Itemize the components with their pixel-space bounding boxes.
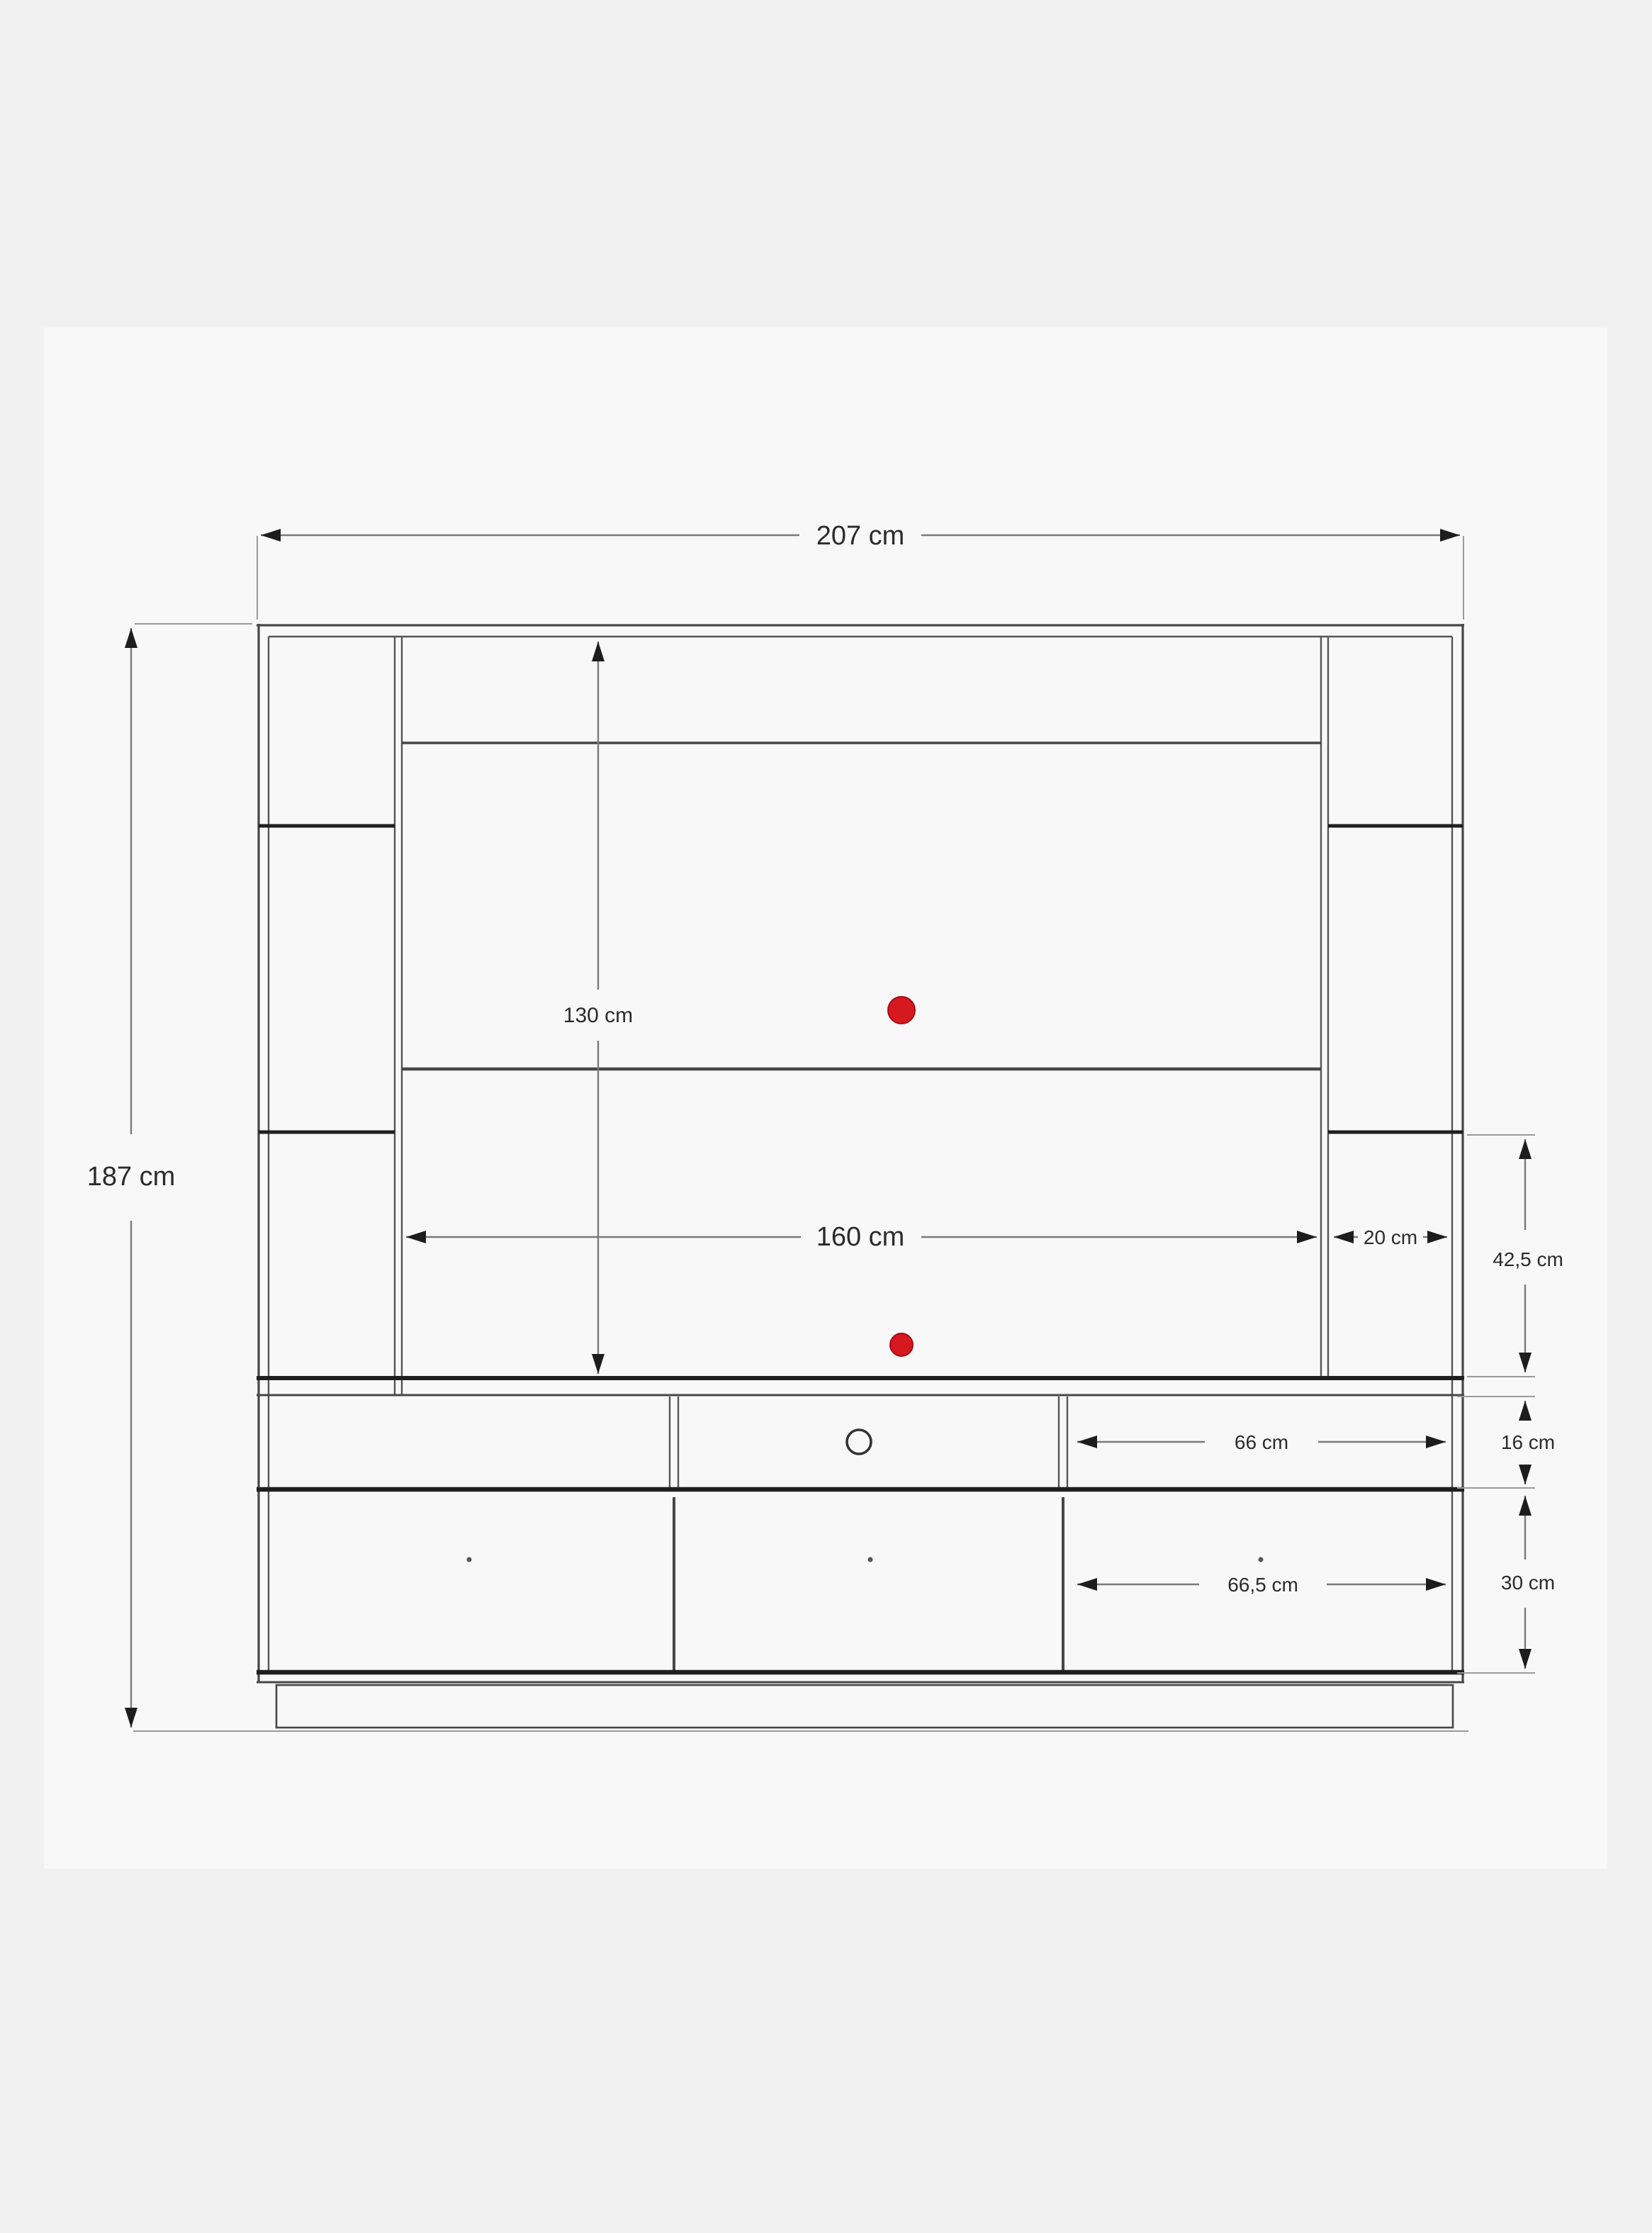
- right-side-column: [1321, 637, 1463, 1378]
- drawer-knob-right: [1259, 1557, 1264, 1562]
- dim-side-column-width-label: 20 cm: [1364, 1226, 1417, 1248]
- dim-shelf-opening-width-label: 66 cm: [1235, 1431, 1288, 1453]
- dimension-total-height: 187 cm: [87, 624, 1468, 1731]
- dimension-shelf-row-height: 16 cm: [1457, 1397, 1555, 1488]
- drawer-knob-left: [467, 1557, 472, 1562]
- dim-shelf-row-height-label: 16 cm: [1501, 1431, 1555, 1453]
- dimension-shelf-opening-width: 66 cm: [1077, 1431, 1446, 1453]
- drawer-row: [257, 1497, 1464, 1728]
- dimension-side-column-width: 20 cm: [1334, 1226, 1447, 1248]
- dim-drawer-width-label: 66,5 cm: [1227, 1574, 1298, 1596]
- dim-tv-opening-width-label: 160 cm: [816, 1222, 905, 1252]
- dimension-side-niche-height: 42,5 cm: [1467, 1135, 1563, 1377]
- plinth: [276, 1685, 1453, 1728]
- carcass-bottom: [257, 1378, 1464, 1395]
- dimension-back-panel-height: 130 cm: [563, 642, 633, 1374]
- back-panel: [402, 743, 1321, 1356]
- dim-back-panel-height-label: 130 cm: [563, 1004, 633, 1027]
- left-side-column: [259, 637, 402, 1395]
- dim-total-height-label: 187 cm: [87, 1162, 176, 1192]
- dimension-drawer-width: 66,5 cm: [1077, 1574, 1446, 1596]
- dimension-tv-opening-width: 160 cm: [406, 1222, 1317, 1252]
- dim-total-width-label: 207 cm: [816, 521, 905, 551]
- center-handle-circle: [847, 1430, 871, 1454]
- dimension-total-width: 207 cm: [257, 521, 1463, 620]
- drawer-knob-middle: [868, 1557, 873, 1562]
- dimension-drawer-height: 30 cm: [1457, 1496, 1555, 1673]
- cable-hole-marker-top: [888, 997, 915, 1024]
- cable-hole-marker-bottom: [890, 1333, 913, 1356]
- dim-drawer-height-label: 30 cm: [1501, 1572, 1555, 1594]
- dimension-drawing: 207 cm 187 cm 130 cm 160 cm 20 cm 42,5 c…: [0, 0, 1652, 2233]
- cabinet-outline: [257, 624, 1464, 1683]
- dim-side-niche-height-label: 42,5 cm: [1493, 1248, 1563, 1270]
